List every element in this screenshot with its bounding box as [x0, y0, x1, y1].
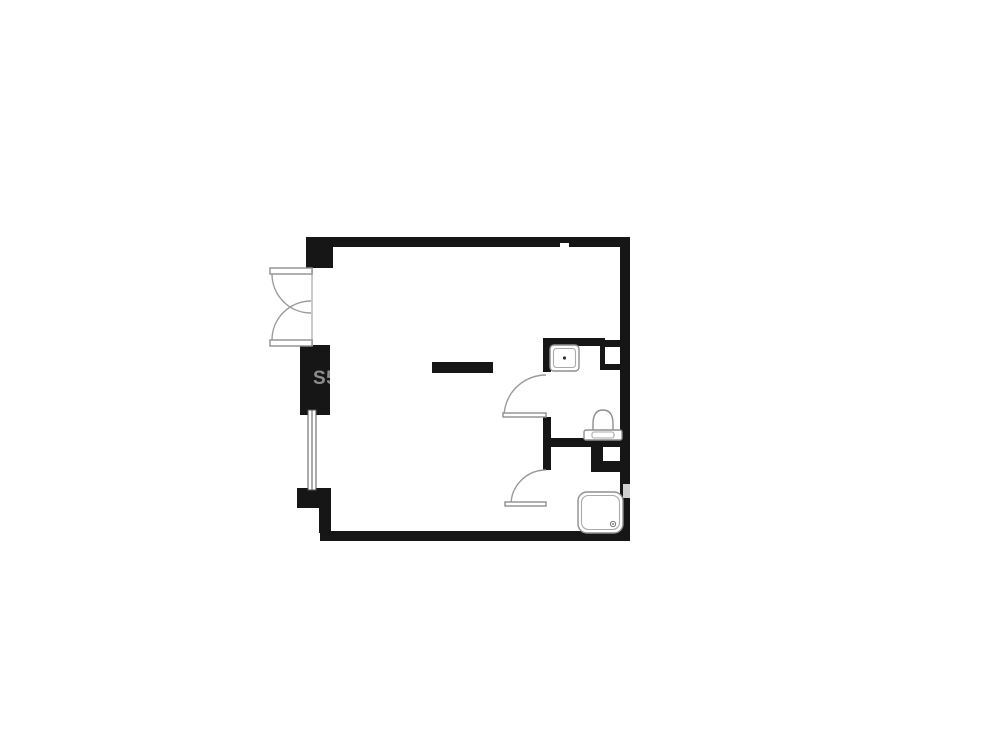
shower-door-arc	[511, 470, 546, 505]
shower-drain-dot	[612, 523, 614, 525]
shower-tray-outer	[578, 492, 623, 533]
sink-drain-dot	[563, 356, 566, 359]
floor-plan-svg: S5	[0, 0, 1000, 750]
top-wall	[306, 237, 630, 247]
bathroom-door-arc	[504, 375, 546, 417]
interior-door-bathroom	[503, 375, 546, 417]
left-bottom-wall-segment	[319, 500, 331, 533]
toilet	[584, 410, 622, 440]
entry-door-leaf-lower	[270, 340, 312, 346]
floor-plan-canvas: S5	[0, 0, 1000, 750]
kitchen-counter	[432, 362, 493, 373]
window	[308, 410, 316, 490]
top-left-pilaster	[306, 237, 333, 268]
entry-door-leaf-upper	[270, 268, 312, 274]
watermark: S5	[313, 368, 337, 389]
entry-threshold-line	[311, 268, 313, 346]
entry-door-arc-lower	[272, 301, 311, 340]
shower-door-leaf	[505, 502, 546, 506]
interior-door-shower	[505, 470, 546, 506]
bathroom-door-leaf	[503, 413, 546, 417]
shower-tray	[578, 492, 623, 533]
top-wall-notch	[560, 243, 569, 247]
duct-upper-opening	[605, 347, 620, 364]
right-wall-notch	[623, 484, 630, 498]
entry-door-arc-upper	[272, 274, 311, 313]
duct-lower-bottom-wall	[591, 461, 623, 472]
entry-double-door	[270, 268, 313, 346]
sink	[550, 345, 579, 371]
